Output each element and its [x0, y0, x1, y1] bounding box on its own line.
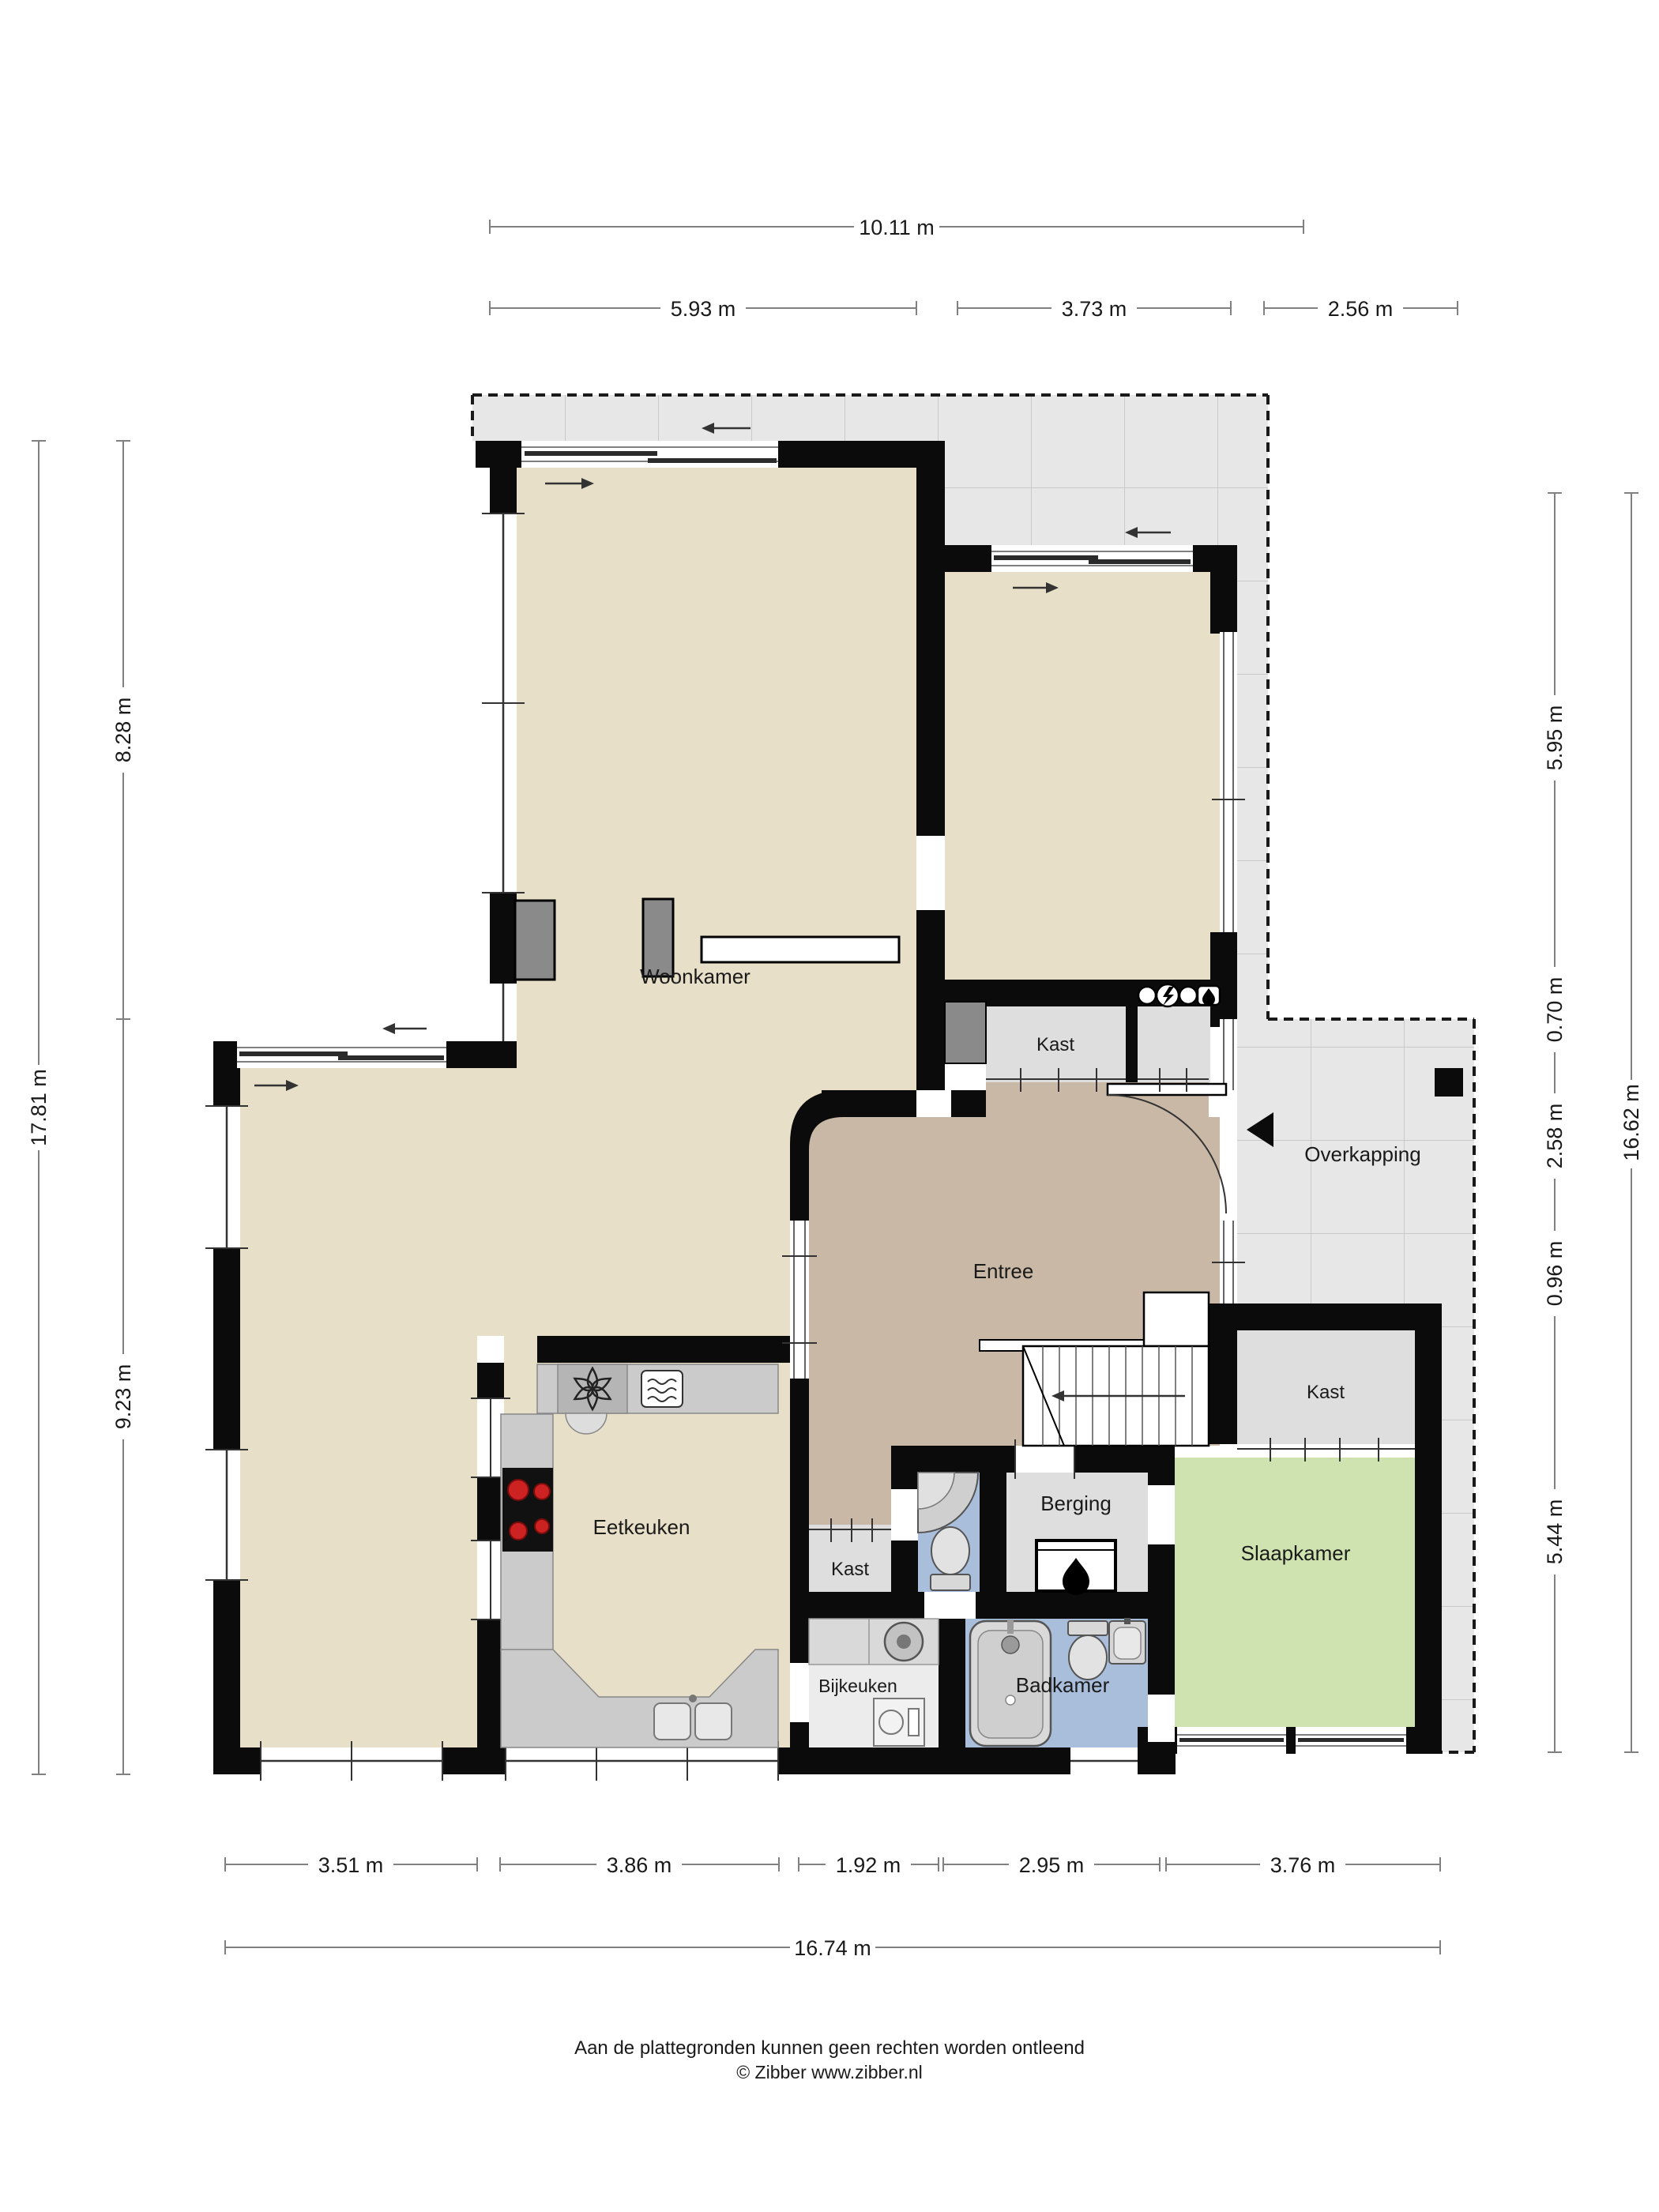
floor-corridor [809, 1446, 891, 1525]
canopy-post [1435, 1068, 1463, 1097]
wall-segment [213, 1041, 237, 1068]
wall-segment [537, 1336, 805, 1363]
dim-right-seg5: 5.44 m [1543, 1499, 1567, 1565]
dim-bottom-seg1: 3.51 m [318, 1853, 384, 1877]
dim-right-total: 16.62 m [1619, 1084, 1643, 1161]
burner [534, 1484, 550, 1499]
burner [510, 1522, 527, 1540]
floor-living-open [240, 1068, 822, 1169]
duct [945, 1002, 986, 1063]
window-bottom-badkamer [1070, 1747, 1138, 1774]
dim-bottom-total: 16.74 m [794, 1936, 871, 1960]
wall-segment [213, 1248, 240, 1450]
wall-segment [490, 441, 517, 513]
window-west-woonkamer2 [490, 984, 517, 1041]
kitchen-sink [695, 1703, 732, 1740]
door-opening [916, 836, 945, 910]
dim-top-seg3: 2.56 m [1328, 297, 1394, 321]
wall-segment [442, 1747, 506, 1774]
wall-segment [477, 1477, 504, 1540]
bath-drain [1006, 1695, 1015, 1705]
wall-segment [891, 1540, 918, 1592]
floorplan-page: Woonkamer Entree Eetkeuken Bijkeuken Bad… [0, 0, 1659, 2212]
dim-bottom-seg4: 2.95 m [1019, 1853, 1085, 1877]
dim-left-seg2: 9.23 m [111, 1364, 135, 1430]
wall-segment [976, 1592, 1148, 1619]
footer-copyright: © Zibber www.zibber.nl [736, 2062, 923, 2082]
boiler [1036, 1540, 1115, 1595]
label-kast-slaapkamer: Kast [1307, 1382, 1345, 1403]
wall-segment [945, 545, 991, 572]
wall-segment [1209, 1303, 1442, 1330]
label-overkapping: Overkapping [1304, 1142, 1420, 1166]
floor-living-open2 [240, 1169, 790, 1336]
label-entree: Entree [973, 1259, 1034, 1283]
sideboard [702, 937, 899, 962]
floor-zitkamer [240, 1336, 477, 1747]
wall-segment [1210, 932, 1237, 980]
wall-segment [916, 441, 945, 572]
dim-right-seg3: 2.58 m [1543, 1104, 1567, 1169]
wall-segment [891, 1446, 1015, 1473]
dim-right-seg4: 0.96 m [1543, 1241, 1567, 1307]
label-berging: Berging [1040, 1492, 1112, 1515]
cooktop [502, 1468, 553, 1552]
label-badkamer: Badkamer [1016, 1673, 1110, 1697]
wall-segment [477, 1363, 504, 1398]
dim-bottom-seg2: 3.86 m [607, 1853, 672, 1877]
toilet-tank [1068, 1621, 1108, 1635]
wall-segment [1210, 547, 1237, 634]
wall-segment [1209, 1330, 1237, 1444]
dim-bottom-seg3: 1.92 m [836, 1853, 901, 1877]
wall-segment [213, 1068, 240, 1106]
wall-segment [213, 1747, 261, 1774]
wall-segment [213, 1580, 240, 1774]
dim-right-seg2: 0.70 m [1543, 977, 1567, 1043]
wall-segment [980, 1473, 1006, 1592]
wall-segment [916, 572, 945, 836]
floor-tuinkamer [945, 572, 1220, 980]
floor-plan: Woonkamer Entree Eetkeuken Bijkeuken Bad… [0, 0, 1659, 2212]
toilet-tank [931, 1574, 970, 1590]
wall-segment [891, 1473, 918, 1489]
dim-left-seg1: 8.28 m [111, 698, 135, 763]
floor-woonkamer [517, 468, 916, 1090]
label-woonkamer: Woonkamer [640, 965, 750, 988]
bath-faucet [1002, 1636, 1019, 1653]
window-bottom-slaapkamer [1177, 1727, 1406, 1754]
footer-disclaimer: Aan de plattegronden kunnen geen rechten… [574, 2037, 1085, 2059]
door-leaf [1108, 1084, 1226, 1095]
floor-kitchen-opening [504, 1336, 537, 1363]
wall-segment [790, 1379, 809, 1663]
wall-segment [477, 1619, 504, 1747]
wall-segment [446, 1041, 517, 1068]
kitchen-sink [654, 1703, 690, 1740]
wall-segment [1415, 1303, 1442, 1754]
dim-left-total: 17.81 m [27, 1069, 51, 1146]
slide-arrow-icon [382, 1023, 395, 1034]
label-slaapkamer: Slaapkamer [1241, 1541, 1351, 1565]
dim-top-total: 10.11 m [859, 216, 935, 239]
burner [508, 1480, 529, 1500]
wall-segment [939, 1619, 965, 1747]
dim-top-seg2: 3.73 m [1062, 297, 1127, 321]
floor-meterkast [1138, 1006, 1210, 1082]
dim-right-seg1: 5.95 m [1543, 705, 1567, 771]
wall-segment [778, 1747, 1070, 1774]
label-kast-hal: Kast [1036, 1034, 1074, 1055]
wall-segment [790, 1592, 924, 1619]
wall-segment [951, 1090, 986, 1117]
toilet-bowl [931, 1527, 969, 1574]
wall-segment [1074, 1446, 1148, 1473]
floor-slaapkamer [1175, 1458, 1415, 1727]
label-kast-gang: Kast [831, 1559, 869, 1580]
fireplace [515, 901, 555, 980]
label-bijkeuken: Bijkeuken [818, 1676, 897, 1696]
wall-segment [490, 893, 517, 984]
wall-segment [1148, 1592, 1175, 1695]
wall-segment [1148, 1544, 1175, 1592]
dim-top-seg1: 5.93 m [671, 297, 736, 321]
wall-segment [1148, 1742, 1175, 1774]
footer: Aan de plattegronden kunnen geen rechten… [574, 2037, 1085, 2082]
label-eetkeuken: Eetkeuken [593, 1515, 690, 1539]
faucet [689, 1695, 697, 1702]
door-opening [916, 1090, 951, 1117]
burner [535, 1519, 549, 1533]
dim-bottom-seg5: 3.76 m [1270, 1853, 1336, 1877]
stair-landing [1144, 1292, 1209, 1346]
wall-segment [1126, 1006, 1138, 1082]
